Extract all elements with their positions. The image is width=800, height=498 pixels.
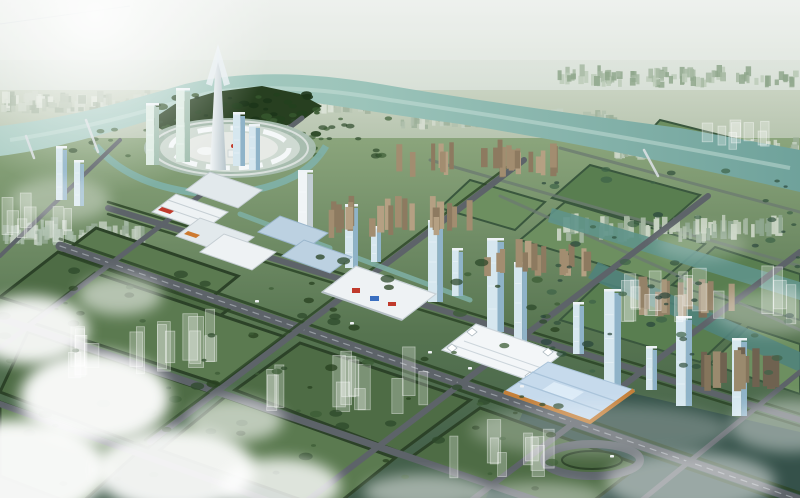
building [646, 225, 649, 236]
tree [765, 237, 775, 243]
building [790, 77, 795, 87]
tree [550, 327, 559, 332]
tree [539, 403, 545, 407]
building [440, 152, 445, 173]
tree [174, 271, 188, 279]
building [700, 78, 704, 88]
tree [169, 396, 182, 403]
tree [542, 182, 546, 184]
tree [337, 257, 350, 264]
building [516, 239, 523, 267]
building [411, 117, 414, 125]
tree [310, 411, 322, 418]
car [428, 351, 432, 354]
tower-roof [573, 302, 584, 305]
tree [451, 351, 457, 354]
building [720, 72, 726, 81]
tree [691, 298, 697, 302]
building [743, 220, 747, 234]
mist [656, 228, 748, 260]
tree [607, 333, 612, 336]
building [669, 76, 673, 84]
tree [526, 305, 537, 311]
building [704, 355, 711, 391]
building [641, 218, 646, 238]
tree [475, 259, 488, 266]
building [396, 144, 402, 171]
tree [651, 181, 656, 184]
tree [648, 284, 655, 288]
tree [787, 211, 793, 214]
building [713, 351, 721, 388]
tree [767, 217, 776, 222]
tree [341, 123, 347, 126]
building [449, 142, 454, 169]
building [434, 217, 440, 235]
mall-sign-red [352, 288, 360, 293]
building [630, 78, 636, 86]
tree [679, 337, 687, 341]
tower-face-dark [377, 230, 381, 262]
tree [570, 241, 581, 247]
building [329, 210, 335, 238]
tower-face-dark [459, 252, 463, 296]
tree [558, 279, 563, 282]
building [321, 104, 326, 114]
tree [323, 127, 329, 131]
tree [550, 184, 560, 189]
tree [694, 215, 701, 219]
tower [676, 316, 692, 406]
tower-roof [452, 248, 463, 251]
tree [618, 292, 627, 297]
tree [784, 185, 788, 187]
tree [284, 100, 293, 105]
tree [545, 459, 558, 466]
tree [362, 359, 374, 366]
building [747, 75, 750, 83]
tree [752, 244, 759, 248]
tree [590, 225, 596, 228]
tree [667, 171, 676, 176]
building [761, 75, 764, 82]
tree [329, 314, 340, 320]
tree [327, 137, 332, 140]
tower [452, 248, 463, 296]
building [377, 206, 384, 233]
building [388, 205, 393, 235]
building [712, 70, 715, 77]
tree [270, 118, 277, 122]
ghost-building [450, 436, 458, 478]
tree [311, 444, 316, 447]
tree [215, 372, 220, 375]
tree [335, 422, 349, 430]
building [541, 151, 546, 176]
building [345, 207, 353, 230]
tree [554, 302, 560, 305]
tower-face-dark [686, 320, 692, 406]
tower-roof [732, 338, 747, 341]
cloud [187, 398, 283, 442]
building [550, 144, 557, 168]
tree [541, 339, 552, 345]
building [425, 125, 428, 129]
tree [620, 259, 631, 265]
mall-sign-blue [370, 296, 379, 301]
tree [208, 333, 216, 337]
tree [664, 303, 669, 306]
rendering-canvas [0, 0, 800, 498]
tower-face-dark [240, 116, 245, 166]
building [775, 80, 779, 86]
building [571, 74, 576, 80]
tree [656, 317, 667, 323]
building [648, 69, 653, 79]
tree [555, 264, 561, 267]
building [481, 148, 488, 167]
tower [514, 262, 527, 342]
ghost-building [419, 372, 428, 405]
building [402, 198, 407, 230]
building [395, 196, 402, 227]
tower-face-dark [615, 293, 622, 386]
car [468, 367, 472, 370]
tree [772, 355, 783, 361]
building [132, 229, 137, 239]
tree [349, 325, 360, 331]
building [746, 66, 751, 76]
tree [646, 322, 655, 327]
tree [200, 281, 211, 287]
tree [384, 285, 394, 290]
tree [554, 181, 559, 184]
tree [547, 289, 557, 295]
ghost-building [729, 133, 737, 150]
cloud [78, 275, 162, 315]
building [584, 71, 588, 83]
ghost-building [718, 126, 726, 145]
tree [432, 437, 445, 444]
building [783, 74, 789, 81]
tree [263, 98, 272, 103]
building [44, 229, 49, 240]
ghost-building [183, 314, 198, 361]
building [691, 77, 696, 87]
tree [330, 308, 338, 312]
tree [764, 370, 773, 375]
tree [567, 266, 572, 269]
building [410, 152, 416, 177]
tree [477, 402, 484, 406]
tree [550, 346, 555, 349]
tree [281, 367, 288, 371]
tree [499, 343, 509, 348]
tree [589, 300, 596, 304]
car [520, 385, 524, 388]
building [531, 243, 537, 270]
building [722, 215, 725, 232]
tree [381, 275, 395, 283]
tree [312, 107, 321, 112]
tree [272, 369, 283, 375]
tree [751, 333, 759, 337]
tree [296, 410, 301, 413]
building [557, 229, 561, 241]
tree [338, 118, 343, 121]
tower-roof [646, 346, 657, 349]
building [401, 122, 405, 129]
building [618, 79, 622, 87]
tree [68, 267, 80, 274]
building [409, 203, 414, 230]
tower-face-dark [522, 266, 527, 342]
tree [303, 94, 314, 100]
tower-face-dark [256, 128, 260, 170]
tree [676, 275, 680, 277]
building [612, 72, 617, 80]
building [779, 215, 783, 233]
building [708, 281, 714, 310]
tree [452, 384, 463, 390]
building [594, 76, 600, 86]
ghost-building [392, 379, 403, 414]
tree [191, 382, 205, 389]
tree [316, 254, 325, 259]
building [584, 252, 591, 272]
tree [556, 351, 566, 357]
aerial-city-rendering [0, 0, 800, 498]
building [500, 249, 505, 273]
tower [604, 289, 621, 386]
car [255, 300, 259, 303]
building [660, 74, 664, 81]
tree [273, 93, 280, 97]
tower [646, 346, 657, 390]
tree [289, 113, 297, 117]
building [602, 81, 606, 87]
ghost-building [702, 123, 713, 142]
mall-sign-red2 [388, 302, 396, 306]
tree [796, 256, 800, 258]
tower [249, 124, 260, 170]
tower-face-dark [437, 224, 443, 302]
tree [255, 95, 261, 98]
building [431, 144, 435, 171]
tree [601, 167, 610, 172]
ghost-building [158, 322, 171, 372]
building [656, 68, 661, 77]
building [336, 204, 342, 232]
building [515, 151, 520, 169]
building [754, 78, 758, 85]
ghost-building [631, 280, 639, 308]
tower [573, 302, 584, 354]
building [561, 251, 568, 273]
ghost-building [333, 355, 346, 407]
tree [406, 397, 411, 400]
building [793, 71, 799, 78]
building [616, 71, 621, 77]
tree [289, 104, 297, 108]
tree [299, 453, 313, 461]
tree [297, 313, 307, 319]
building [720, 353, 727, 383]
tree [601, 177, 613, 183]
building [558, 70, 562, 80]
tree [385, 420, 396, 426]
building [738, 354, 746, 389]
building [751, 224, 755, 237]
ghost-building [403, 347, 416, 396]
tree [676, 332, 686, 338]
tree [385, 116, 392, 120]
tree [421, 357, 429, 361]
tree [329, 410, 342, 417]
tree [139, 319, 145, 323]
tree [355, 137, 361, 140]
ghost-building [744, 123, 754, 141]
tree [304, 298, 314, 304]
building [706, 73, 712, 83]
tree [695, 281, 702, 285]
building [369, 218, 376, 236]
tree [249, 332, 254, 335]
building [580, 64, 585, 76]
building [498, 140, 503, 168]
tree [307, 386, 312, 389]
building [578, 76, 583, 84]
building [467, 200, 473, 230]
tree [774, 180, 780, 183]
tree [690, 353, 695, 356]
tree [453, 309, 467, 317]
tree [373, 149, 380, 153]
tree [450, 279, 462, 286]
tree [207, 380, 220, 387]
tree [692, 364, 701, 369]
building [541, 246, 546, 273]
tree [488, 472, 493, 475]
building [447, 203, 452, 231]
building [420, 119, 425, 130]
tree [554, 321, 561, 325]
building [569, 244, 575, 267]
tree [377, 153, 386, 158]
tree [670, 260, 680, 265]
ghost-building [675, 296, 683, 322]
tree [69, 286, 78, 291]
building [736, 73, 739, 82]
tree [612, 236, 617, 239]
tree [627, 221, 639, 228]
tower-face-dark [580, 306, 584, 354]
tree [721, 169, 730, 174]
tree [791, 223, 796, 226]
tree [539, 319, 547, 323]
building [739, 75, 745, 84]
tree [309, 282, 315, 285]
tree [495, 285, 501, 288]
tree [781, 231, 785, 233]
tree [655, 296, 662, 300]
building [509, 152, 514, 170]
tree [383, 459, 389, 462]
ghost-building [349, 360, 359, 396]
tree [255, 373, 259, 375]
building [657, 80, 660, 85]
building [605, 72, 610, 81]
tree [532, 277, 543, 283]
tree [263, 108, 268, 111]
tower-roof [487, 238, 504, 241]
building [752, 348, 759, 387]
ghost-building [358, 364, 370, 409]
tower-roof [298, 170, 313, 173]
building [529, 152, 534, 173]
tree [319, 138, 324, 141]
tree [679, 363, 688, 368]
tree [269, 287, 274, 290]
tree [763, 199, 769, 202]
car [350, 322, 354, 325]
building [759, 219, 764, 237]
tree [325, 364, 337, 371]
mist [470, 404, 730, 456]
building [682, 74, 687, 83]
building [665, 72, 669, 77]
top-haze [0, 0, 800, 60]
tower-roof [604, 289, 621, 292]
tower-face-dark [653, 350, 657, 390]
tree [582, 341, 594, 347]
ghost-building [693, 268, 707, 311]
tree [202, 359, 207, 362]
building [523, 252, 528, 271]
building [766, 76, 771, 87]
tree [653, 212, 663, 218]
tree [464, 272, 471, 276]
ghost-building [761, 121, 770, 146]
tower-roof [249, 124, 260, 127]
tree [589, 369, 595, 372]
tree [540, 315, 546, 318]
tree [519, 395, 524, 398]
building [67, 231, 73, 239]
